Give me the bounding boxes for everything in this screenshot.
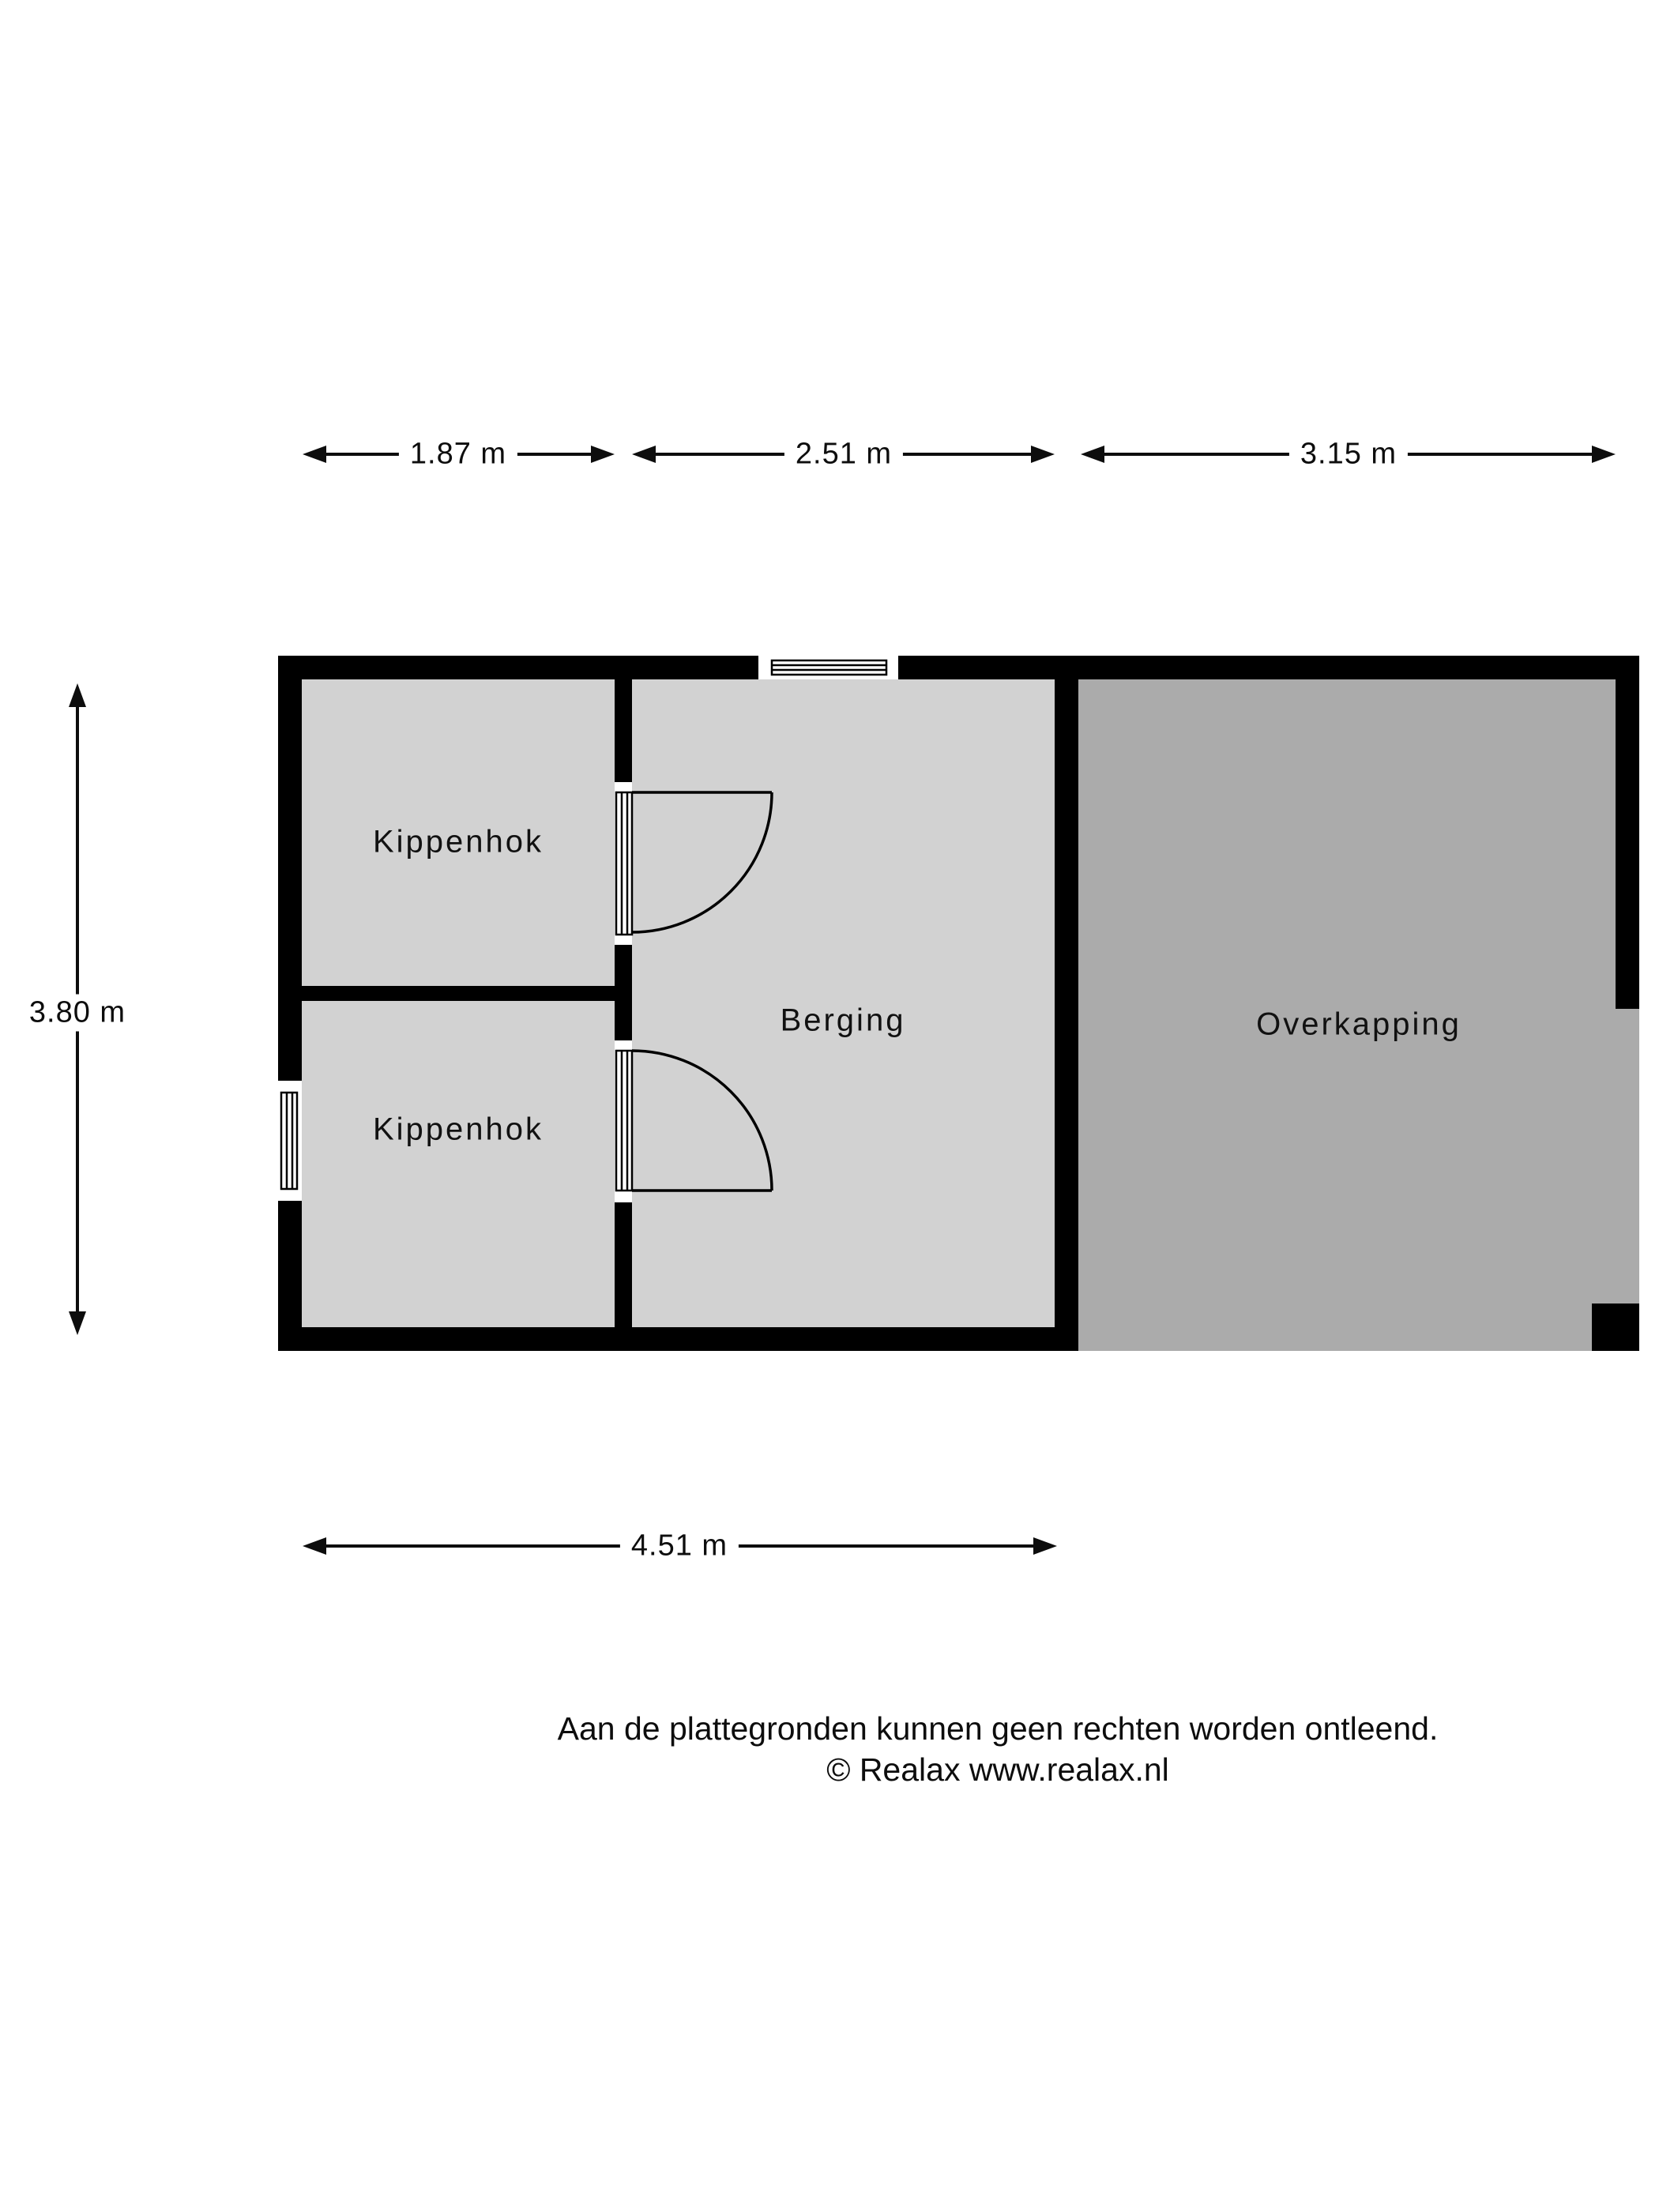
room-label-berging: Berging [781, 1003, 906, 1039]
wall-interior-vertical-top [615, 679, 632, 782]
wall-bottom [278, 1327, 1078, 1351]
room-label-overkapping: Overkapping [1256, 1007, 1461, 1043]
arrowhead-right-icon [1033, 1537, 1057, 1555]
arrowhead-left-icon [1081, 446, 1104, 463]
window-frame [281, 1093, 297, 1189]
dimension-label-left: 3.80 m [18, 995, 137, 1032]
dimension-label-top-3: 3.15 m [1289, 436, 1408, 473]
copyright-line: © Realax www.realax.nl [558, 1749, 1439, 1790]
floorplan-drawing [0, 0, 1659, 2212]
window-top-berging [758, 656, 898, 679]
arrowhead-right-icon [591, 446, 615, 463]
floorplan-page: Kippenhok Kippenhok Berging Overkapping … [0, 0, 1659, 2212]
door-leaf [616, 1051, 632, 1191]
footer-disclaimer: Aan de plattegronden kunnen geen rechten… [558, 1708, 1439, 1790]
door-leaf [616, 792, 632, 935]
pillar-overkapping-corner [1592, 1303, 1639, 1351]
wall-berging-overkapping [1055, 656, 1078, 1351]
room-fill-kippenhok-lower [302, 1001, 615, 1327]
wall-top-left-segment [278, 656, 758, 679]
arrowhead-left-icon [632, 446, 656, 463]
dimension-label-bottom: 4.51 m [620, 1528, 739, 1565]
arrowhead-left-icon [303, 446, 326, 463]
arrowhead-up-icon [69, 683, 86, 707]
dimension-label-top-1: 1.87 m [399, 436, 517, 473]
arrowhead-right-icon [1031, 446, 1055, 463]
room-label-kippenhok-lower: Kippenhok [373, 1112, 544, 1148]
arrowhead-left-icon [303, 1537, 326, 1555]
wall-divider-kippenhok [302, 986, 632, 1001]
disclaimer-line: Aan de plattegronden kunnen geen rechten… [558, 1708, 1439, 1749]
window-left-kippenhok [277, 1081, 302, 1201]
wall-left-upper-segment [278, 656, 302, 1081]
wall-right-partial [1616, 656, 1639, 1009]
wall-interior-vertical-bottom [615, 1202, 632, 1327]
arrowhead-right-icon [1592, 446, 1616, 463]
wall-top-right-segment [898, 656, 1639, 679]
window-frame [772, 660, 886, 675]
dimension-label-top-2: 2.51 m [784, 436, 903, 473]
arrowhead-down-icon [69, 1311, 86, 1335]
room-label-kippenhok-upper: Kippenhok [373, 825, 544, 860]
